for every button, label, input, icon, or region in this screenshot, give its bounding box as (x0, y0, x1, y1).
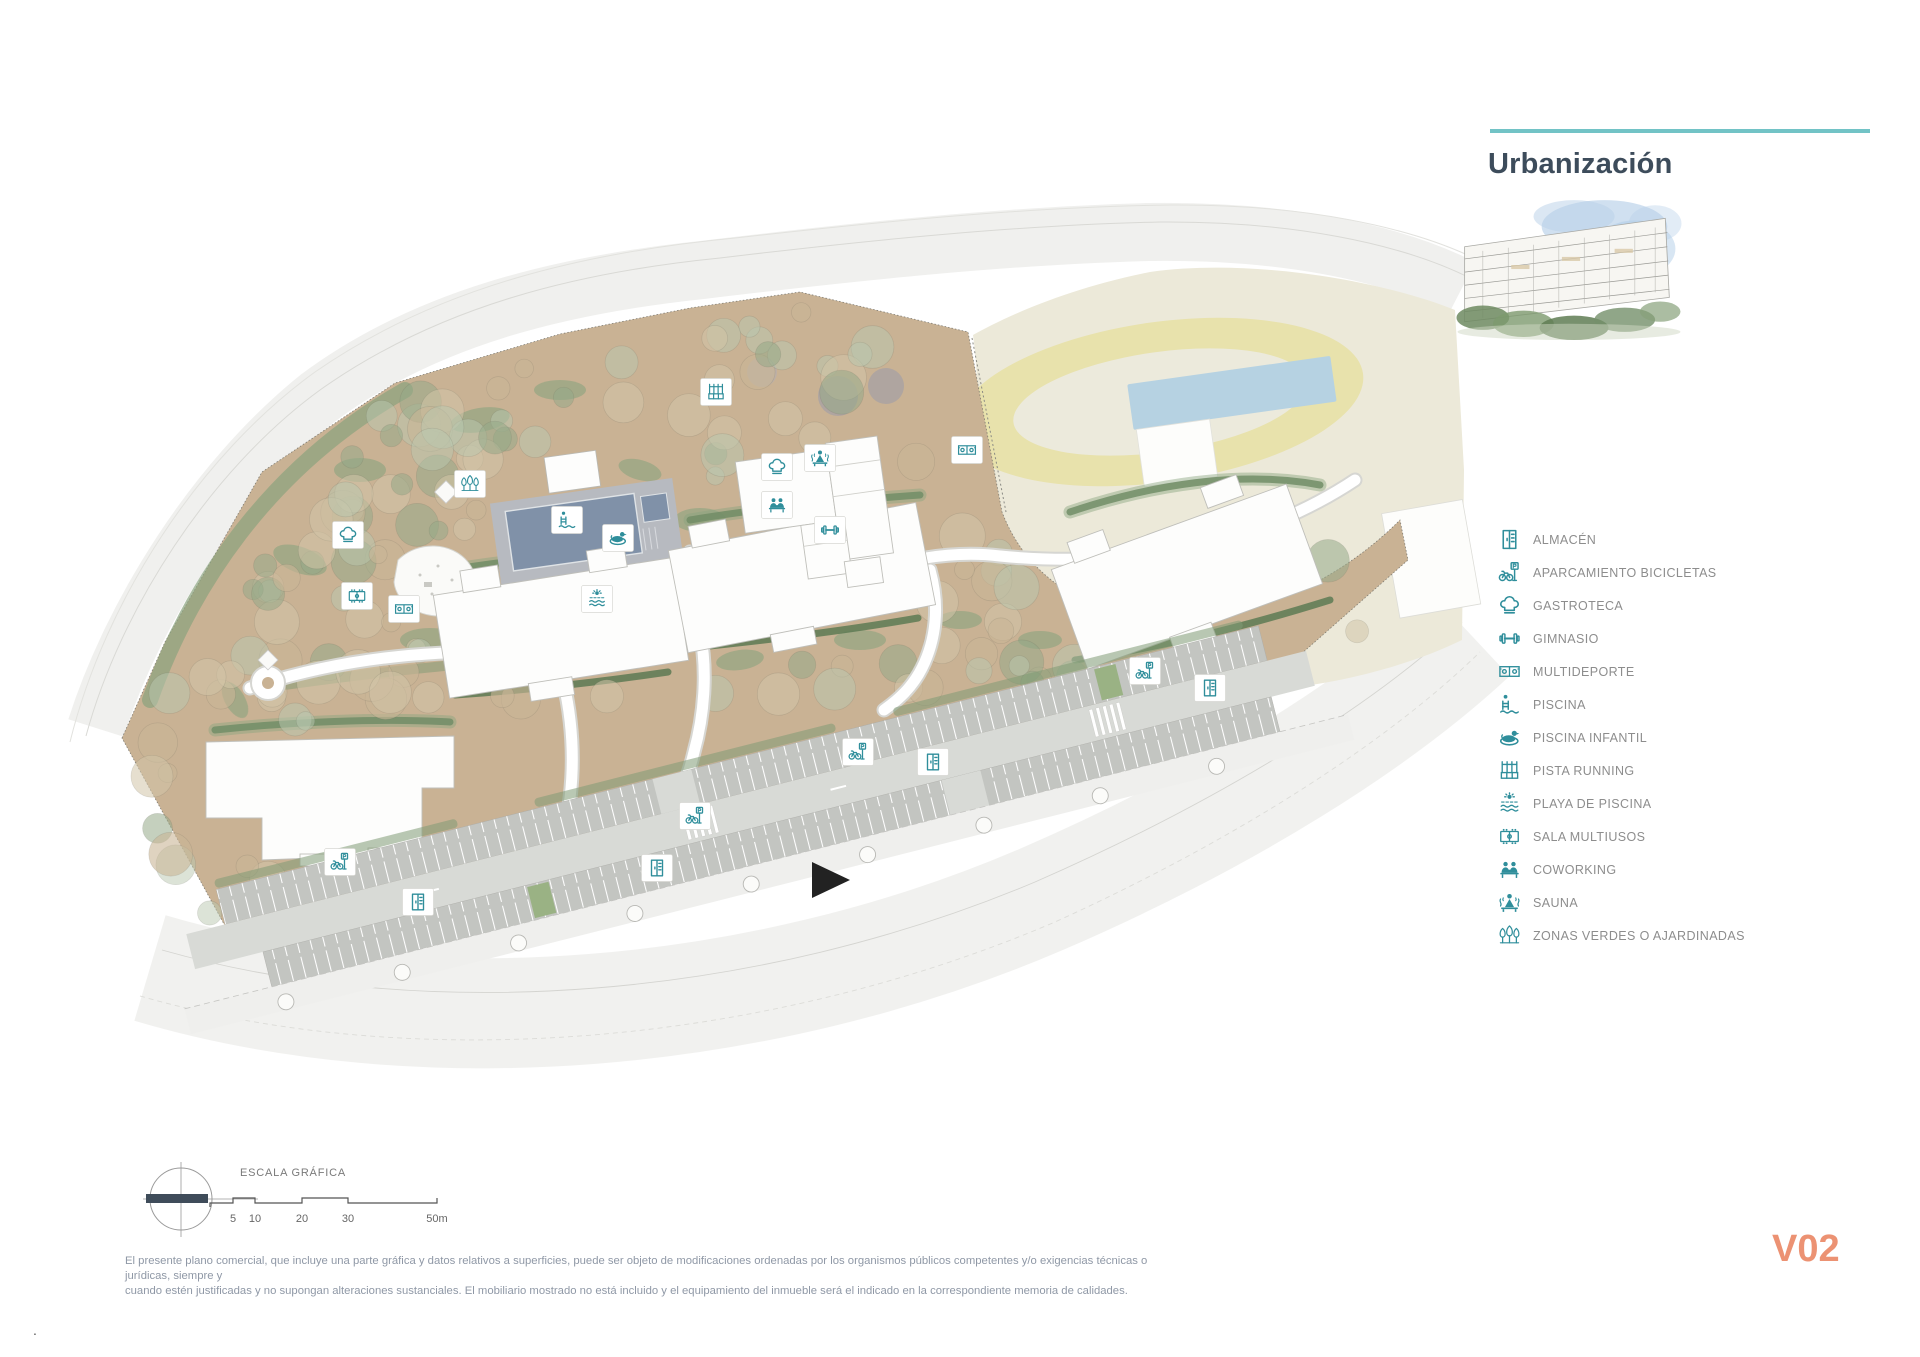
map-icon-aparcamiento-bicicletas (680, 803, 711, 830)
legend-item-label: MULTIDEPORTE (1533, 665, 1635, 679)
map-icon-pista-running (701, 379, 732, 406)
playa-piscina-icon (1496, 791, 1523, 816)
map-icon-multideporte (389, 596, 420, 623)
map-icon-zonas-verdes (455, 471, 486, 498)
legend-item-label: COWORKING (1533, 863, 1616, 877)
map-icon-sala-multiusos (342, 583, 373, 610)
disclaimer-line-2: cuando estén justificadas y no supongan … (125, 1285, 1128, 1297)
legend-item-zonas-verdes: ZONAS VERDES O AJARDINADAS (1496, 923, 1745, 948)
map-icon-aparcamiento-bicicletas (843, 739, 874, 766)
building-rendering (1452, 188, 1686, 340)
north-marker-bar (146, 1194, 208, 1203)
coworking-icon (1496, 857, 1523, 882)
disclaimer-line-1: El presente plano comercial, que incluye… (125, 1255, 1147, 1282)
legend-item-label: GASTROTECA (1533, 599, 1623, 613)
legend-item-coworking: COWORKING (1496, 857, 1745, 882)
piscina-icon (1496, 692, 1523, 717)
map-icon-aparcamiento-bicicletas (325, 849, 356, 876)
scale-tick-label: 50m (426, 1213, 447, 1225)
version-label: V02 (1772, 1228, 1840, 1271)
scale-label: ESCALA GRÁFICA (240, 1167, 346, 1179)
legend-item-label: PLAYA DE PISCINA (1533, 797, 1651, 811)
almacen-icon (1496, 527, 1523, 552)
legend-item-gastroteca: GASTROTECA (1496, 593, 1745, 618)
kids-pool (640, 493, 669, 522)
legend-item-label: SALA MULTIUSOS (1533, 830, 1645, 844)
legend-item-multideporte: MULTIDEPORTE (1496, 659, 1745, 684)
zonas-verdes-icon (1496, 923, 1523, 948)
map-icon-almacen (1195, 675, 1226, 702)
map-icon-piscina-infantil (603, 525, 634, 552)
map-icon-almacen (403, 889, 434, 916)
sala-multiusos-icon (1496, 824, 1523, 849)
legend-item-label: SAUNA (1533, 896, 1578, 910)
disclaimer: El presente plano comercial, que incluye… (125, 1254, 1170, 1299)
map-icon-playa-piscina (582, 586, 613, 613)
scale-tick-label: 30 (342, 1213, 354, 1225)
legend: ALMACÉNAPARCAMIENTO BICICLETASGASTROTECA… (1496, 527, 1745, 956)
legend-item-sala-multiusos: SALA MULTIUSOS (1496, 824, 1745, 849)
footnote-dot: . (33, 1322, 37, 1338)
legend-item-aparcamiento-bicicletas: APARCAMIENTO BICICLETAS (1496, 560, 1745, 585)
scale-tick-label: 10 (249, 1213, 261, 1225)
map-icon-gastroteca (333, 522, 364, 549)
legend-item-playa-piscina: PLAYA DE PISCINA (1496, 791, 1745, 816)
plan-page: 510203050m Urbanización ALMACÉNAPARCAMIE… (0, 0, 1920, 1357)
map-icon-sauna (805, 445, 836, 472)
map-icon-coworking (762, 492, 793, 519)
multideporte-icon (1496, 659, 1523, 684)
map-icon-gastroteca (762, 454, 793, 481)
map-icon-aparcamiento-bicicletas (1130, 658, 1161, 685)
legend-item-sauna: SAUNA (1496, 890, 1745, 915)
aparcamiento-bicicletas-icon (1496, 560, 1523, 585)
pista-running-icon (1496, 758, 1523, 783)
legend-item-piscina: PISCINA (1496, 692, 1745, 717)
gastroteca-icon (1496, 593, 1523, 618)
legend-item-label: APARCAMIENTO BICICLETAS (1533, 566, 1717, 580)
legend-item-label: PISCINA (1533, 698, 1586, 712)
map-icon-almacen (642, 855, 673, 882)
legend-item-pista-running: PISTA RUNNING (1496, 758, 1745, 783)
map-icon-piscina (552, 507, 583, 534)
gimnasio-icon (1496, 626, 1523, 651)
scale-tick-label: 20 (296, 1213, 308, 1225)
legend-item-label: PISTA RUNNING (1533, 764, 1635, 778)
accent-line (1490, 129, 1870, 133)
piscina-infantil-icon (1496, 725, 1523, 750)
legend-item-almacen: ALMACÉN (1496, 527, 1745, 552)
legend-item-piscina-infantil: PISCINA INFANTIL (1496, 725, 1745, 750)
map-icon-gimnasio (815, 517, 846, 544)
legend-item-label: ALMACÉN (1533, 533, 1596, 547)
legend-item-label: GIMNASIO (1533, 632, 1599, 646)
apartment-building (1465, 218, 1670, 321)
legend-item-label: PISCINA INFANTIL (1533, 731, 1647, 745)
map-icon-multideporte (952, 437, 983, 464)
map-icon-almacen (918, 749, 949, 776)
legend-item-label: ZONAS VERDES O AJARDINADAS (1533, 929, 1745, 943)
legend-item-gimnasio: GIMNASIO (1496, 626, 1745, 651)
page-title: Urbanización (1488, 148, 1673, 181)
scale-tick-label: 5 (230, 1213, 236, 1225)
sauna-icon (1496, 890, 1523, 915)
